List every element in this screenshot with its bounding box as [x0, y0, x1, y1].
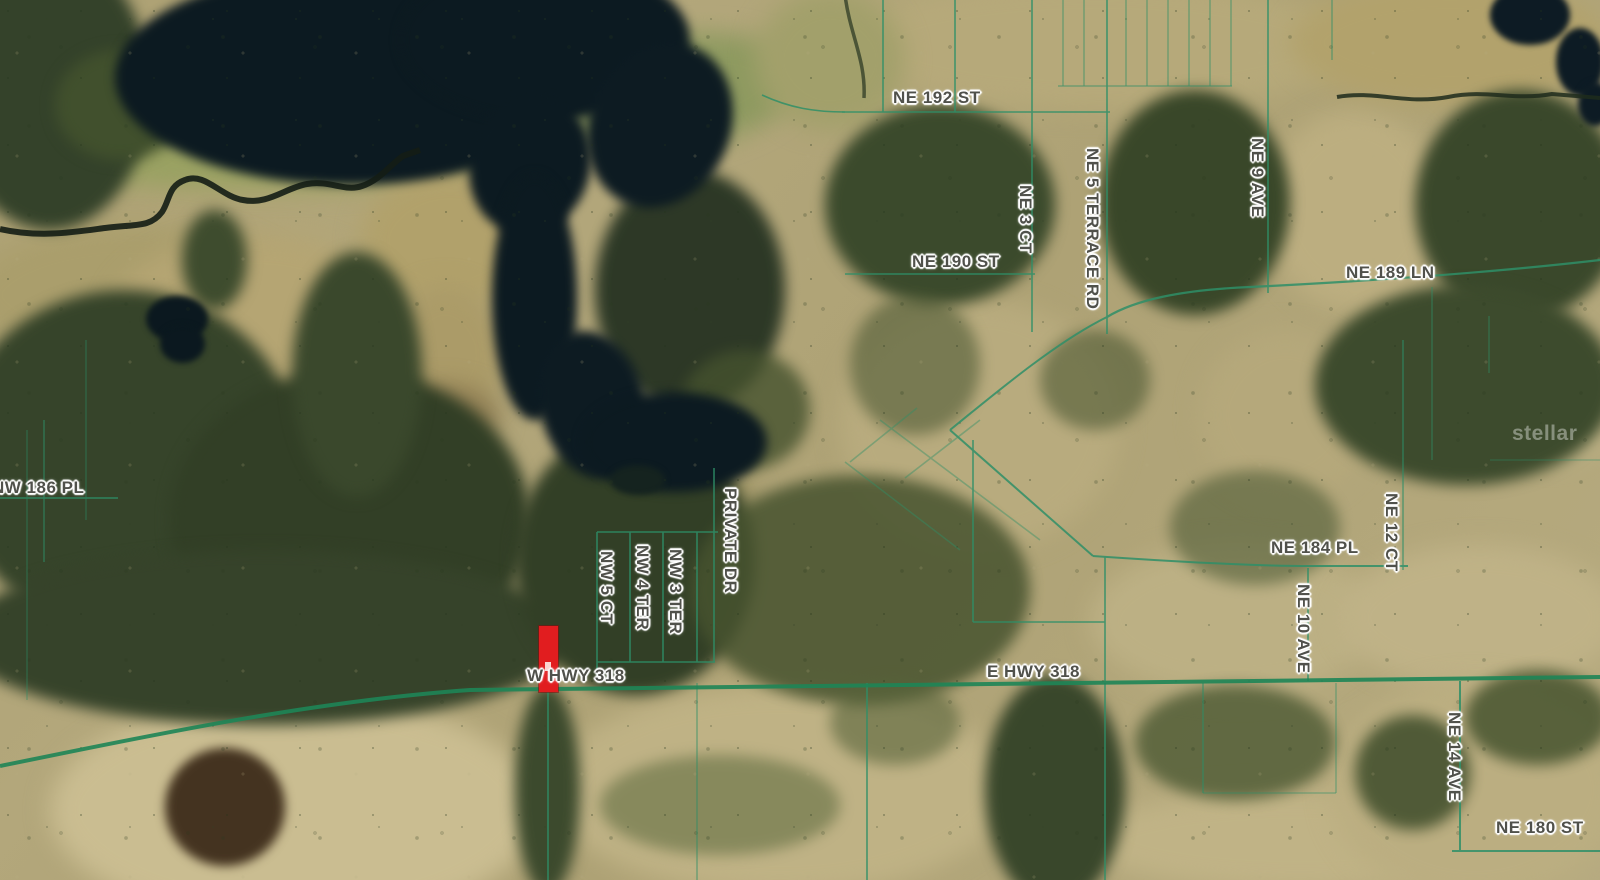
terrain-field	[1200, 330, 1370, 500]
terrain-forest	[170, 370, 530, 670]
terrain-forest	[0, 290, 300, 630]
water-channel	[492, 175, 577, 420]
terrain-marsh	[360, 170, 540, 310]
street-label-ne-190-st: NE 190 ST	[912, 252, 1000, 272]
water-channel	[561, 18, 760, 231]
water-lake-corner	[1490, 0, 1570, 45]
terrain-field	[1090, 545, 1380, 695]
street-label-nw-186-pl: NW 186 PL	[0, 478, 84, 498]
water-pond-small	[146, 296, 208, 342]
terrain-forest	[680, 350, 810, 470]
terrain-field	[1080, 790, 1520, 880]
terrain-forest	[1135, 685, 1335, 800]
creek-northeast	[1337, 94, 1600, 99]
street-label-ne-189-ln: NE 189 LN	[1346, 263, 1435, 283]
terrain-marsh	[755, 0, 905, 130]
water-lake-corner	[1578, 82, 1600, 126]
terrain-field	[840, 300, 1120, 550]
creek-top-center	[845, 0, 864, 98]
street-label-nw-4-ter: NW 4 TER	[632, 545, 652, 630]
street-label-ne-5-terrace-rd: NE 5 TERRACE RD	[1082, 148, 1102, 309]
satellite-map[interactable]: NE 192 ST NE 190 ST NE 189 LN NE 3 CT NE…	[0, 0, 1600, 880]
terrain-texture	[0, 0, 1600, 880]
terrain-forest	[600, 755, 840, 855]
street-label-ne-180-st: NE 180 ST	[1496, 818, 1584, 838]
street-label-e-hwy-318: E HWY 318	[987, 662, 1080, 682]
terrain-marsh	[385, 385, 500, 450]
terrain-forest	[1415, 90, 1600, 320]
street-label-ne-192-st: NE 192 ST	[893, 88, 981, 108]
street-label-ne-12-ct: NE 12 CT	[1381, 493, 1401, 572]
terrain-forest	[0, 0, 150, 230]
street-label-w-hwy-318: W HWY 318	[527, 666, 625, 686]
water-lake	[400, 0, 690, 120]
terrain-marsh	[0, 90, 550, 190]
water-pond-small	[160, 325, 205, 363]
street-label-nw-5-ct: NW 5 CT	[596, 551, 616, 624]
terrain-forest	[1170, 470, 1340, 585]
terrain-forest	[985, 675, 1125, 880]
creek-west	[0, 150, 420, 234]
road-hwy-318-line	[0, 677, 1600, 766]
terrain-forest	[1465, 670, 1600, 765]
terrain-marsh	[543, 18, 807, 167]
parcel-road-lines	[0, 0, 1600, 880]
terrain-forest	[595, 170, 785, 410]
terrain-forest	[55, 50, 185, 160]
terrain-forest	[515, 685, 580, 880]
terrain-forest	[690, 475, 1030, 705]
terrain-marsh	[110, 235, 400, 405]
water-pond	[582, 392, 767, 492]
terrain-forest	[830, 680, 960, 765]
street-label-ne-10-ave: NE 10 AVE	[1293, 584, 1313, 674]
water-pond-small	[610, 465, 665, 495]
terrain-field	[50, 695, 540, 880]
terrain-forest	[292, 252, 422, 497]
street-label-ne-184-pl: NE 184 PL	[1271, 538, 1359, 558]
terrain-forest	[0, 550, 570, 725]
terrain-forest	[1040, 330, 1150, 430]
street-label-ne-3-ct: NE 3 CT	[1015, 185, 1035, 254]
terrain-field	[1340, 545, 1600, 690]
water-lake-corner	[1556, 28, 1600, 96]
water-channel	[523, 320, 661, 491]
street-label-ne-9-ave: NE 9 AVE	[1247, 138, 1267, 218]
terrain-marsh	[1290, 0, 1600, 105]
water-lake	[115, 0, 585, 185]
street-label-private-dr: PRIVATE DR	[720, 488, 740, 593]
terrain-marsh	[385, 285, 505, 425]
terrain-forest	[182, 210, 247, 310]
terrain-field	[1330, 680, 1600, 880]
street-label-nw-3-ter: NW 3 TER	[665, 549, 685, 634]
wetland-dark	[165, 748, 285, 866]
street-label-ne-14-ave: NE 14 AVE	[1444, 712, 1464, 802]
terrain-marsh	[0, 225, 300, 365]
terrain-forest	[1315, 285, 1600, 485]
water-channel	[451, 80, 608, 250]
terrain-forest	[850, 295, 980, 435]
watermark: stellar	[1512, 422, 1577, 446]
terrain-field	[550, 685, 1010, 880]
